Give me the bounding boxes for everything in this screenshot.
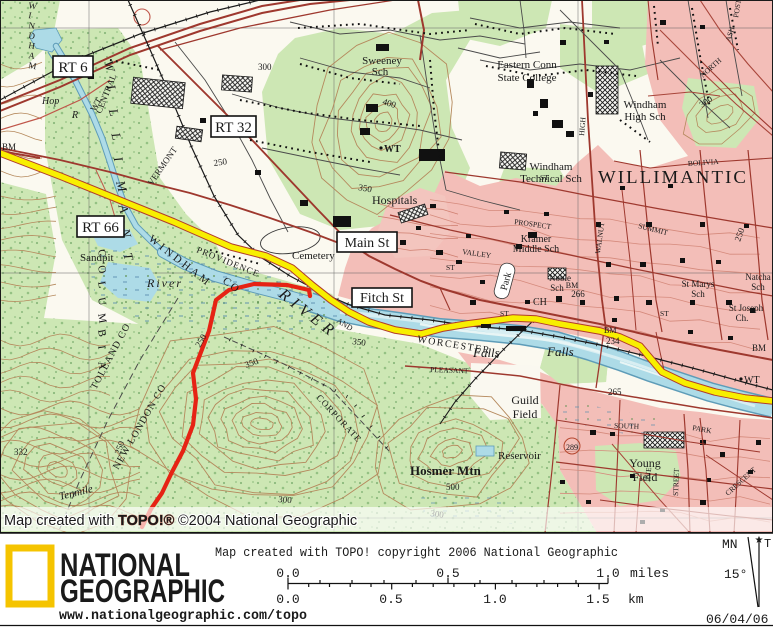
svg-text:ST: ST	[660, 309, 669, 318]
svg-text:0.5: 0.5	[379, 592, 402, 607]
svg-text:Sch: Sch	[550, 283, 564, 293]
svg-text:300: 300	[258, 62, 272, 72]
svg-text:ST: ST	[446, 263, 455, 272]
svg-text:Falls: Falls	[546, 344, 574, 359]
svg-text:Fitch St: Fitch St	[360, 291, 404, 306]
svg-text:ST: ST	[540, 173, 549, 182]
svg-text:266: 266	[571, 289, 585, 299]
svg-text:R: R	[71, 110, 78, 121]
svg-text:Sch: Sch	[751, 282, 765, 292]
svg-text:RT 66: RT 66	[82, 220, 119, 236]
svg-text:AVE: AVE	[643, 467, 653, 483]
svg-text:River: River	[146, 276, 183, 290]
svg-text:BM: BM	[2, 142, 16, 152]
svg-text:Natcha: Natcha	[745, 272, 770, 282]
svg-text:289: 289	[566, 443, 578, 452]
svg-text:km: km	[628, 592, 644, 607]
svg-text:Middle Sch: Middle Sch	[513, 244, 559, 255]
svg-text:STREET: STREET	[671, 468, 681, 496]
svg-text:Technical Sch: Technical Sch	[520, 173, 582, 185]
svg-text:Windham: Windham	[624, 99, 667, 111]
svg-text:ST: ST	[500, 309, 509, 318]
svg-text:1.0: 1.0	[483, 592, 506, 607]
svg-text:1.0: 1.0	[596, 566, 619, 581]
svg-text:Hospitals: Hospitals	[372, 193, 418, 207]
svg-text:Hop: Hop	[41, 96, 59, 107]
svg-text:06/04/06: 06/04/06	[706, 612, 768, 627]
svg-text:250: 250	[213, 156, 228, 168]
svg-text:T: T	[764, 537, 771, 551]
svg-text:15°: 15°	[724, 567, 747, 582]
svg-text:Ch.: Ch.	[736, 313, 749, 323]
svg-text:TOPO!®: TOPO!®	[118, 513, 175, 529]
svg-text:Eastern Conn: Eastern Conn	[497, 59, 557, 71]
svg-text:Sch: Sch	[372, 66, 389, 78]
svg-text:Field: Field	[513, 407, 538, 421]
svg-text:SOUTH: SOUTH	[614, 421, 640, 431]
svg-text:Falls: Falls	[472, 345, 500, 360]
svg-text:Map created with TOPO! copyrig: Map created with TOPO! copyright 2006 Na…	[215, 546, 618, 560]
svg-text:WT: WT	[384, 144, 401, 155]
svg-text:RT 32: RT 32	[215, 120, 252, 136]
svg-text:State College: State College	[498, 72, 557, 84]
svg-text:Sch: Sch	[691, 289, 705, 299]
svg-text:Hosmer Mtn: Hosmer Mtn	[410, 463, 482, 478]
svg-text:350: 350	[352, 336, 367, 348]
svg-text:St Marys: St Marys	[682, 279, 715, 289]
svg-text:WT: WT	[744, 375, 760, 386]
svg-text:High Sch: High Sch	[624, 111, 666, 123]
svg-text:©2004 National Geographic: ©2004 National Geographic	[178, 513, 357, 529]
svg-text:HIGH: HIGH	[577, 116, 588, 136]
svg-text:BM: BM	[604, 326, 616, 335]
svg-text:Cemetery: Cemetery	[292, 250, 335, 262]
svg-text:BM: BM	[566, 281, 578, 290]
svg-text:332: 332	[14, 447, 28, 457]
svg-text:Guild: Guild	[511, 393, 538, 407]
svg-text:GEOGRAPHIC: GEOGRAPHIC	[60, 573, 225, 609]
svg-text:★: ★	[755, 535, 764, 546]
svg-text:0.0: 0.0	[276, 592, 299, 607]
svg-text:265: 265	[608, 387, 622, 397]
svg-text:MN: MN	[722, 537, 738, 552]
svg-text:St Joseph: St Joseph	[729, 303, 764, 313]
svg-text:Windham: Windham	[530, 161, 573, 173]
svg-text:BM: BM	[752, 343, 766, 353]
svg-text:0.0: 0.0	[276, 566, 299, 581]
svg-text:CH: CH	[533, 297, 547, 308]
svg-text:234: 234	[606, 336, 620, 346]
svg-text:PLEASANT: PLEASANT	[430, 365, 469, 375]
svg-text:Reservoir: Reservoir	[498, 450, 541, 462]
svg-text:300: 300	[278, 494, 293, 505]
svg-text:RT 6: RT 6	[58, 60, 88, 76]
svg-text:500: 500	[446, 482, 460, 492]
svg-text:Main St: Main St	[345, 236, 390, 251]
svg-text:M: M	[28, 60, 38, 71]
svg-text:www.nationalgeographic.com/top: www.nationalgeographic.com/topo	[59, 609, 307, 624]
svg-text:1.5: 1.5	[586, 592, 609, 607]
svg-text:miles: miles	[630, 566, 669, 581]
svg-text:WILLIMANTIC: WILLIMANTIC	[598, 167, 748, 187]
svg-text:0.5: 0.5	[436, 566, 459, 581]
svg-text:Map created with: Map created with	[4, 513, 114, 529]
